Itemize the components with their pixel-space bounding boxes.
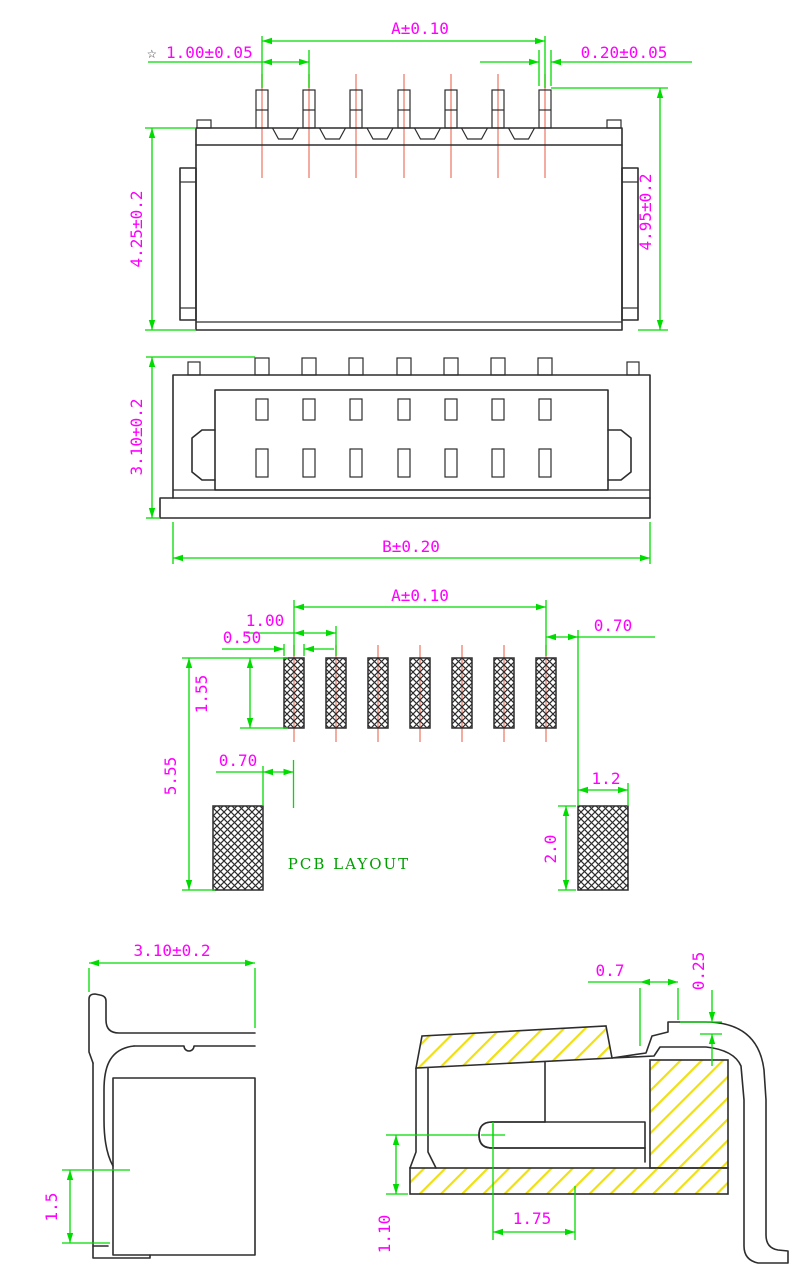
dim-foot-height: 1.5: [42, 1170, 130, 1243]
solder-pad: [326, 658, 346, 728]
solder-pad: [536, 658, 556, 728]
dim-lead-top-label: 0.7: [596, 961, 625, 980]
dim-anchor-offset: 0.70: [216, 751, 294, 808]
dim-anchor-offset-label: 0.70: [219, 751, 258, 770]
dim-body-height-label: 4.25±0.2: [127, 190, 146, 267]
dim-standoff-label: 1.10: [375, 1215, 394, 1254]
corner-tab: [197, 120, 211, 128]
dim-body-depth-label: 3.10±0.2: [127, 398, 146, 475]
section-rear-wall: [650, 1060, 728, 1168]
dim-contact-depth-label: 1.75: [513, 1209, 552, 1228]
dim-pad-length-label: 1.55: [192, 675, 211, 714]
dim-side-width: 3.10±0.2: [89, 941, 255, 1028]
lock-bump-right: [608, 430, 631, 480]
section-bottom-wall: [410, 1168, 728, 1194]
dim-body-width: B±0.20: [173, 522, 650, 564]
connector-technical-drawing: A±0.10 ☆ 1.00±0.05 0.20±0.05 4.25±0.2: [0, 0, 790, 1277]
dim-anchor-pad-width-label: 1.2: [592, 769, 621, 788]
dim-pad-length: 1.55: [182, 658, 288, 728]
base-plate: [160, 498, 650, 518]
dim-pad-span-label: A±0.10: [391, 586, 449, 605]
dim-body-height: 4.25±0.2: [127, 128, 196, 330]
drawing-canvas: A±0.10 ☆ 1.00±0.05 0.20±0.05 4.25±0.2: [0, 0, 790, 1277]
top-view: A±0.10 ☆ 1.00±0.05 0.20±0.05 4.25±0.2: [127, 19, 692, 330]
pcb-layout-view: A±0.10 1.00 0.50 1.55 5.55: [161, 586, 655, 890]
solder-pad: [452, 658, 472, 728]
corner-tab: [627, 362, 639, 375]
dim-pin-width-label: 0.20±0.05: [581, 43, 668, 62]
dim-side-width-label: 3.10±0.2: [133, 941, 210, 960]
dim-pad-to-anchor-label: 0.70: [594, 616, 633, 635]
solder-pad: [410, 658, 430, 728]
dim-anchor-pad-height-label: 2.0: [541, 835, 560, 864]
dim-pitch-label: 1.00±0.05: [166, 43, 253, 62]
dim-foot-height-label: 1.5: [42, 1193, 61, 1222]
solder-pads: [284, 658, 556, 728]
section-view: 0.7 0.25 1.75 1.10: [375, 952, 788, 1263]
dim-anchor-pad-height: 2.0: [541, 806, 576, 890]
section-top-wall: [416, 1026, 612, 1068]
front-housing: [160, 358, 650, 518]
dim-anchor-pad-width: 1.2: [578, 769, 628, 806]
contact-slots-upper: [256, 399, 551, 420]
corner-tab: [188, 362, 200, 375]
pcb-layout-caption: PCB LAYOUT: [288, 855, 410, 873]
anchor-pad-left: [213, 806, 263, 890]
solder-pad: [368, 658, 388, 728]
side-body: [113, 1078, 255, 1255]
dim-body-depth: 3.10±0.2: [127, 357, 255, 518]
dim-body-width-label: B±0.20: [382, 537, 440, 556]
section-front-wall: [410, 1068, 436, 1168]
mating-cavity: [215, 390, 608, 490]
dim-pin-span-label: A±0.10: [391, 19, 449, 38]
front-view: 3.10±0.2 B±0.20: [127, 357, 650, 564]
dim-lead-thickness-label: 0.25: [689, 952, 708, 991]
dim-pad-width: 0.50: [222, 628, 334, 656]
retention-hook: [89, 994, 255, 1063]
solder-pad: [494, 658, 514, 728]
dim-pitch: ☆ 1.00±0.05: [147, 43, 309, 88]
mounting-flange-left: [180, 168, 196, 320]
solder-pad: [284, 658, 304, 728]
corner-tab: [607, 120, 621, 128]
side-view: 3.10±0.2 1.5: [42, 941, 255, 1258]
dim-pin-width: 0.20±0.05: [480, 43, 692, 86]
pitch-star-mark: ☆: [147, 43, 157, 62]
anchor-pad-right: [578, 806, 628, 890]
dim-total-height: 4.95±0.2: [551, 88, 668, 330]
lock-bump-left: [192, 430, 215, 480]
dim-total-height-label: 4.95±0.2: [636, 173, 655, 250]
dim-pad-width-label: 0.50: [223, 628, 262, 647]
dim-overall-length-label: 5.55: [161, 757, 180, 796]
contact-slots-lower: [256, 449, 551, 477]
side-foot: [93, 1246, 150, 1258]
side-profile: [89, 994, 255, 1258]
housing-body: [180, 120, 638, 330]
